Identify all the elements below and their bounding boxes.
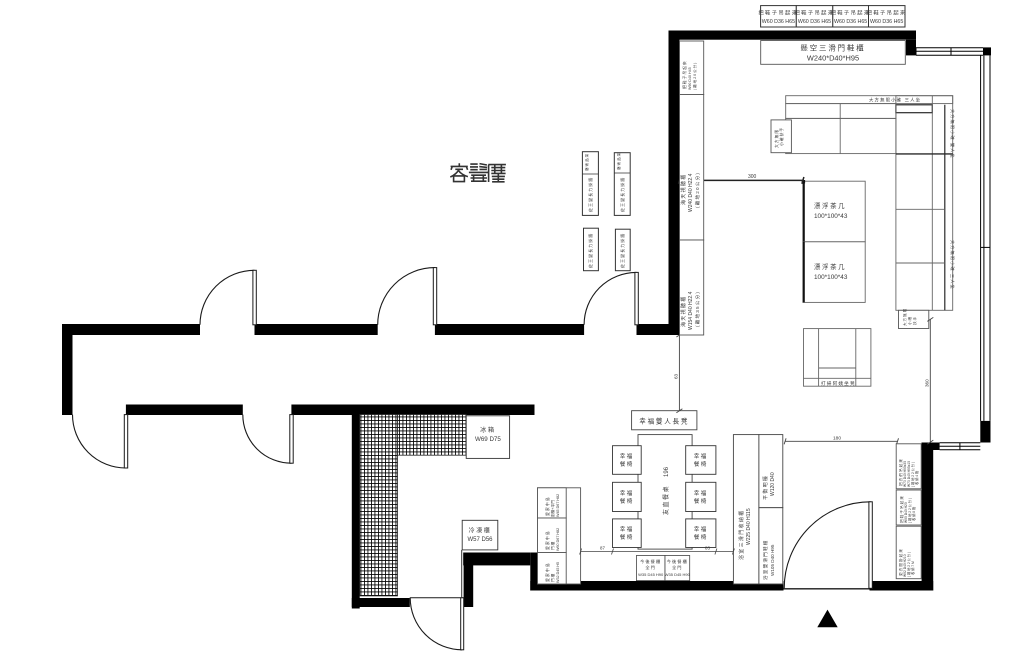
svg-text:300: 300 bbox=[748, 174, 757, 180]
svg-text:100*100*43: 100*100*43 bbox=[814, 274, 848, 281]
svg-text:漂浮茶几: 漂浮茶几 bbox=[814, 201, 846, 210]
svg-text:把鞋子吊起來: 把鞋子吊起來 bbox=[831, 9, 871, 17]
svg-text:180: 180 bbox=[833, 436, 841, 442]
svg-text:佐王變長力掛牆: 佐王變長力掛牆 bbox=[619, 177, 625, 212]
svg-text:W105 D40 H95: W105 D40 H95 bbox=[770, 544, 775, 576]
svg-text:幸福: 幸福 bbox=[620, 525, 634, 533]
svg-text:愛家中島: 愛家中島 bbox=[545, 496, 550, 516]
svg-text:浴室三滑門收納櫃: 浴室三滑門收納櫃 bbox=[738, 510, 745, 560]
svg-text:(離地20公分): (離地20公分) bbox=[694, 172, 701, 208]
svg-text:把鞋子吊起來: 把鞋子吊起來 bbox=[682, 60, 687, 89]
svg-text:扶手: 扶手 bbox=[912, 316, 917, 325]
svg-text:幸福: 幸福 bbox=[694, 452, 708, 460]
svg-text:W69 D75: W69 D75 bbox=[475, 436, 501, 443]
svg-text:佐王變長力掛牆: 佐王變長力掛牆 bbox=[587, 233, 593, 268]
svg-text:W225 D40 H115: W225 D40 H115 bbox=[746, 508, 752, 545]
svg-text:W60 D36 H65: W60 D36 H65 bbox=[798, 19, 831, 25]
svg-text:把鞋子吊起來: 把鞋子吊起來 bbox=[794, 9, 834, 17]
svg-text:W60 D36 H65: W60 D36 H65 bbox=[870, 19, 903, 25]
svg-text:今後餐櫃: 今後餐櫃 bbox=[640, 558, 661, 565]
svg-text:W90 D40 H45: W90 D40 H45 bbox=[688, 67, 692, 90]
svg-text:大方無限小確 三人坐: 大方無限小確 三人坐 bbox=[949, 240, 956, 290]
svg-text:幸福: 幸福 bbox=[694, 525, 708, 533]
svg-text:幸福雙人長凳: 幸福雙人長凳 bbox=[639, 417, 689, 426]
svg-text:W60 D67 H82: W60 D67 H82 bbox=[556, 528, 560, 551]
svg-text:小確: 小確 bbox=[907, 316, 912, 325]
svg-text:打掃阿姨坐凳: 打掃阿姨坐凳 bbox=[821, 380, 856, 387]
svg-text:友直餐桌: 友直餐桌 bbox=[662, 485, 670, 515]
svg-text:W32 D45 H5: W32 D45 H5 bbox=[556, 562, 560, 583]
svg-text:W60 D36 H65: W60 D36 H65 bbox=[834, 19, 867, 25]
svg-text:大方無限小確 三人坐: 大方無限小確 三人坐 bbox=[869, 97, 921, 104]
svg-text:浴室雙滑門鞋櫃: 浴室雙滑門鞋櫃 bbox=[762, 539, 769, 580]
svg-text:196: 196 bbox=[664, 466, 670, 477]
svg-text:幸福: 幸福 bbox=[620, 489, 634, 497]
svg-text:佐王變長力掛牆: 佐王變長力掛牆 bbox=[587, 177, 593, 212]
svg-text:83: 83 bbox=[705, 546, 710, 551]
svg-text:W240 D40 H22.4: W240 D40 H22.4 bbox=[688, 173, 694, 212]
svg-text:今後餐櫃: 今後餐櫃 bbox=[667, 558, 688, 565]
svg-text:冰箱: 冰箱 bbox=[480, 426, 496, 434]
svg-text:藝術品架: 藝術品架 bbox=[584, 153, 589, 171]
svg-text:佐王變長力掛牆: 佐王變長力掛牆 bbox=[619, 233, 625, 268]
svg-text:藝術品架: 藝術品架 bbox=[616, 152, 621, 170]
svg-text:100*100*43: 100*100*43 bbox=[814, 213, 848, 220]
svg-text:W60 D36 H65: W60 D36 H65 bbox=[762, 19, 795, 25]
svg-text:漂浮茶几: 漂浮茶几 bbox=[814, 262, 846, 271]
svg-text:87: 87 bbox=[600, 546, 605, 551]
svg-text:W57 D56: W57 D56 bbox=[467, 537, 493, 543]
svg-text:把鞋子吊起來: 把鞋子吊起來 bbox=[758, 9, 798, 17]
svg-text:63: 63 bbox=[674, 373, 679, 379]
svg-text:廚檯+平門: 廚檯+平門 bbox=[550, 500, 555, 517]
svg-text:360: 360 bbox=[925, 379, 930, 387]
svg-text:餐椅: 餐椅 bbox=[694, 533, 708, 541]
svg-text:收納4格: 收納4格 bbox=[914, 470, 919, 485]
svg-text:愛家中島: 愛家中島 bbox=[545, 530, 550, 550]
svg-text:收納7M: 收納7M bbox=[910, 560, 915, 575]
svg-text:W120 D40: W120 D40 bbox=[770, 472, 776, 496]
svg-text:大方無限: 大方無限 bbox=[902, 308, 907, 326]
svg-text:把鞋子吊起來: 把鞋子吊起來 bbox=[867, 9, 907, 17]
svg-text:W35 D45 H90: W35 D45 H90 bbox=[638, 572, 664, 577]
svg-text:愛家中島: 愛家中島 bbox=[545, 562, 550, 582]
svg-text:W35 D45 H90: W35 D45 H90 bbox=[665, 572, 691, 577]
svg-text:海天視聽櫃: 海天視聽櫃 bbox=[680, 173, 687, 205]
svg-text:幸福: 幸福 bbox=[620, 452, 634, 460]
svg-text:門櫃: 門櫃 bbox=[550, 573, 555, 582]
svg-text:收納8格: 收納8格 bbox=[911, 506, 916, 521]
svg-text:大方無限小確 雙人坐: 大方無限小確 雙人坐 bbox=[949, 109, 956, 159]
svg-text:餐椅: 餐椅 bbox=[694, 460, 708, 468]
svg-text:幸福: 幸福 bbox=[694, 489, 708, 497]
svg-text:平衡吧檯: 平衡吧檯 bbox=[762, 475, 769, 500]
svg-text:W154 D40 H22.4: W154 D40 H22.4 bbox=[688, 291, 694, 330]
svg-text:餐椅: 餐椅 bbox=[620, 497, 634, 505]
svg-text:W240*D40*H95: W240*D40*H95 bbox=[807, 54, 859, 63]
svg-text:全門: 全門 bbox=[672, 564, 683, 571]
svg-text:全門: 全門 bbox=[645, 564, 656, 571]
svg-text:餐椅: 餐椅 bbox=[620, 533, 634, 541]
svg-text:小確扶手: 小確扶手 bbox=[779, 127, 784, 146]
svg-text:懸空三滑門鞋櫃: 懸空三滑門鞋櫃 bbox=[800, 44, 865, 53]
svg-text:W45 D67 H82: W45 D67 H82 bbox=[556, 494, 560, 517]
svg-text:(離地20公分): (離地20公分) bbox=[692, 62, 697, 90]
svg-text:冷凍櫃: 冷凍櫃 bbox=[469, 527, 492, 535]
svg-text:(離地35公分): (離地35公分) bbox=[694, 291, 701, 327]
svg-text:海天視聽櫃: 海天視聽櫃 bbox=[680, 295, 687, 327]
svg-text:餐椅: 餐椅 bbox=[694, 497, 708, 505]
svg-text:門櫃: 門櫃 bbox=[550, 541, 555, 550]
svg-text:大方無限: 大方無限 bbox=[774, 129, 779, 148]
svg-text:餐椅: 餐椅 bbox=[620, 460, 634, 468]
